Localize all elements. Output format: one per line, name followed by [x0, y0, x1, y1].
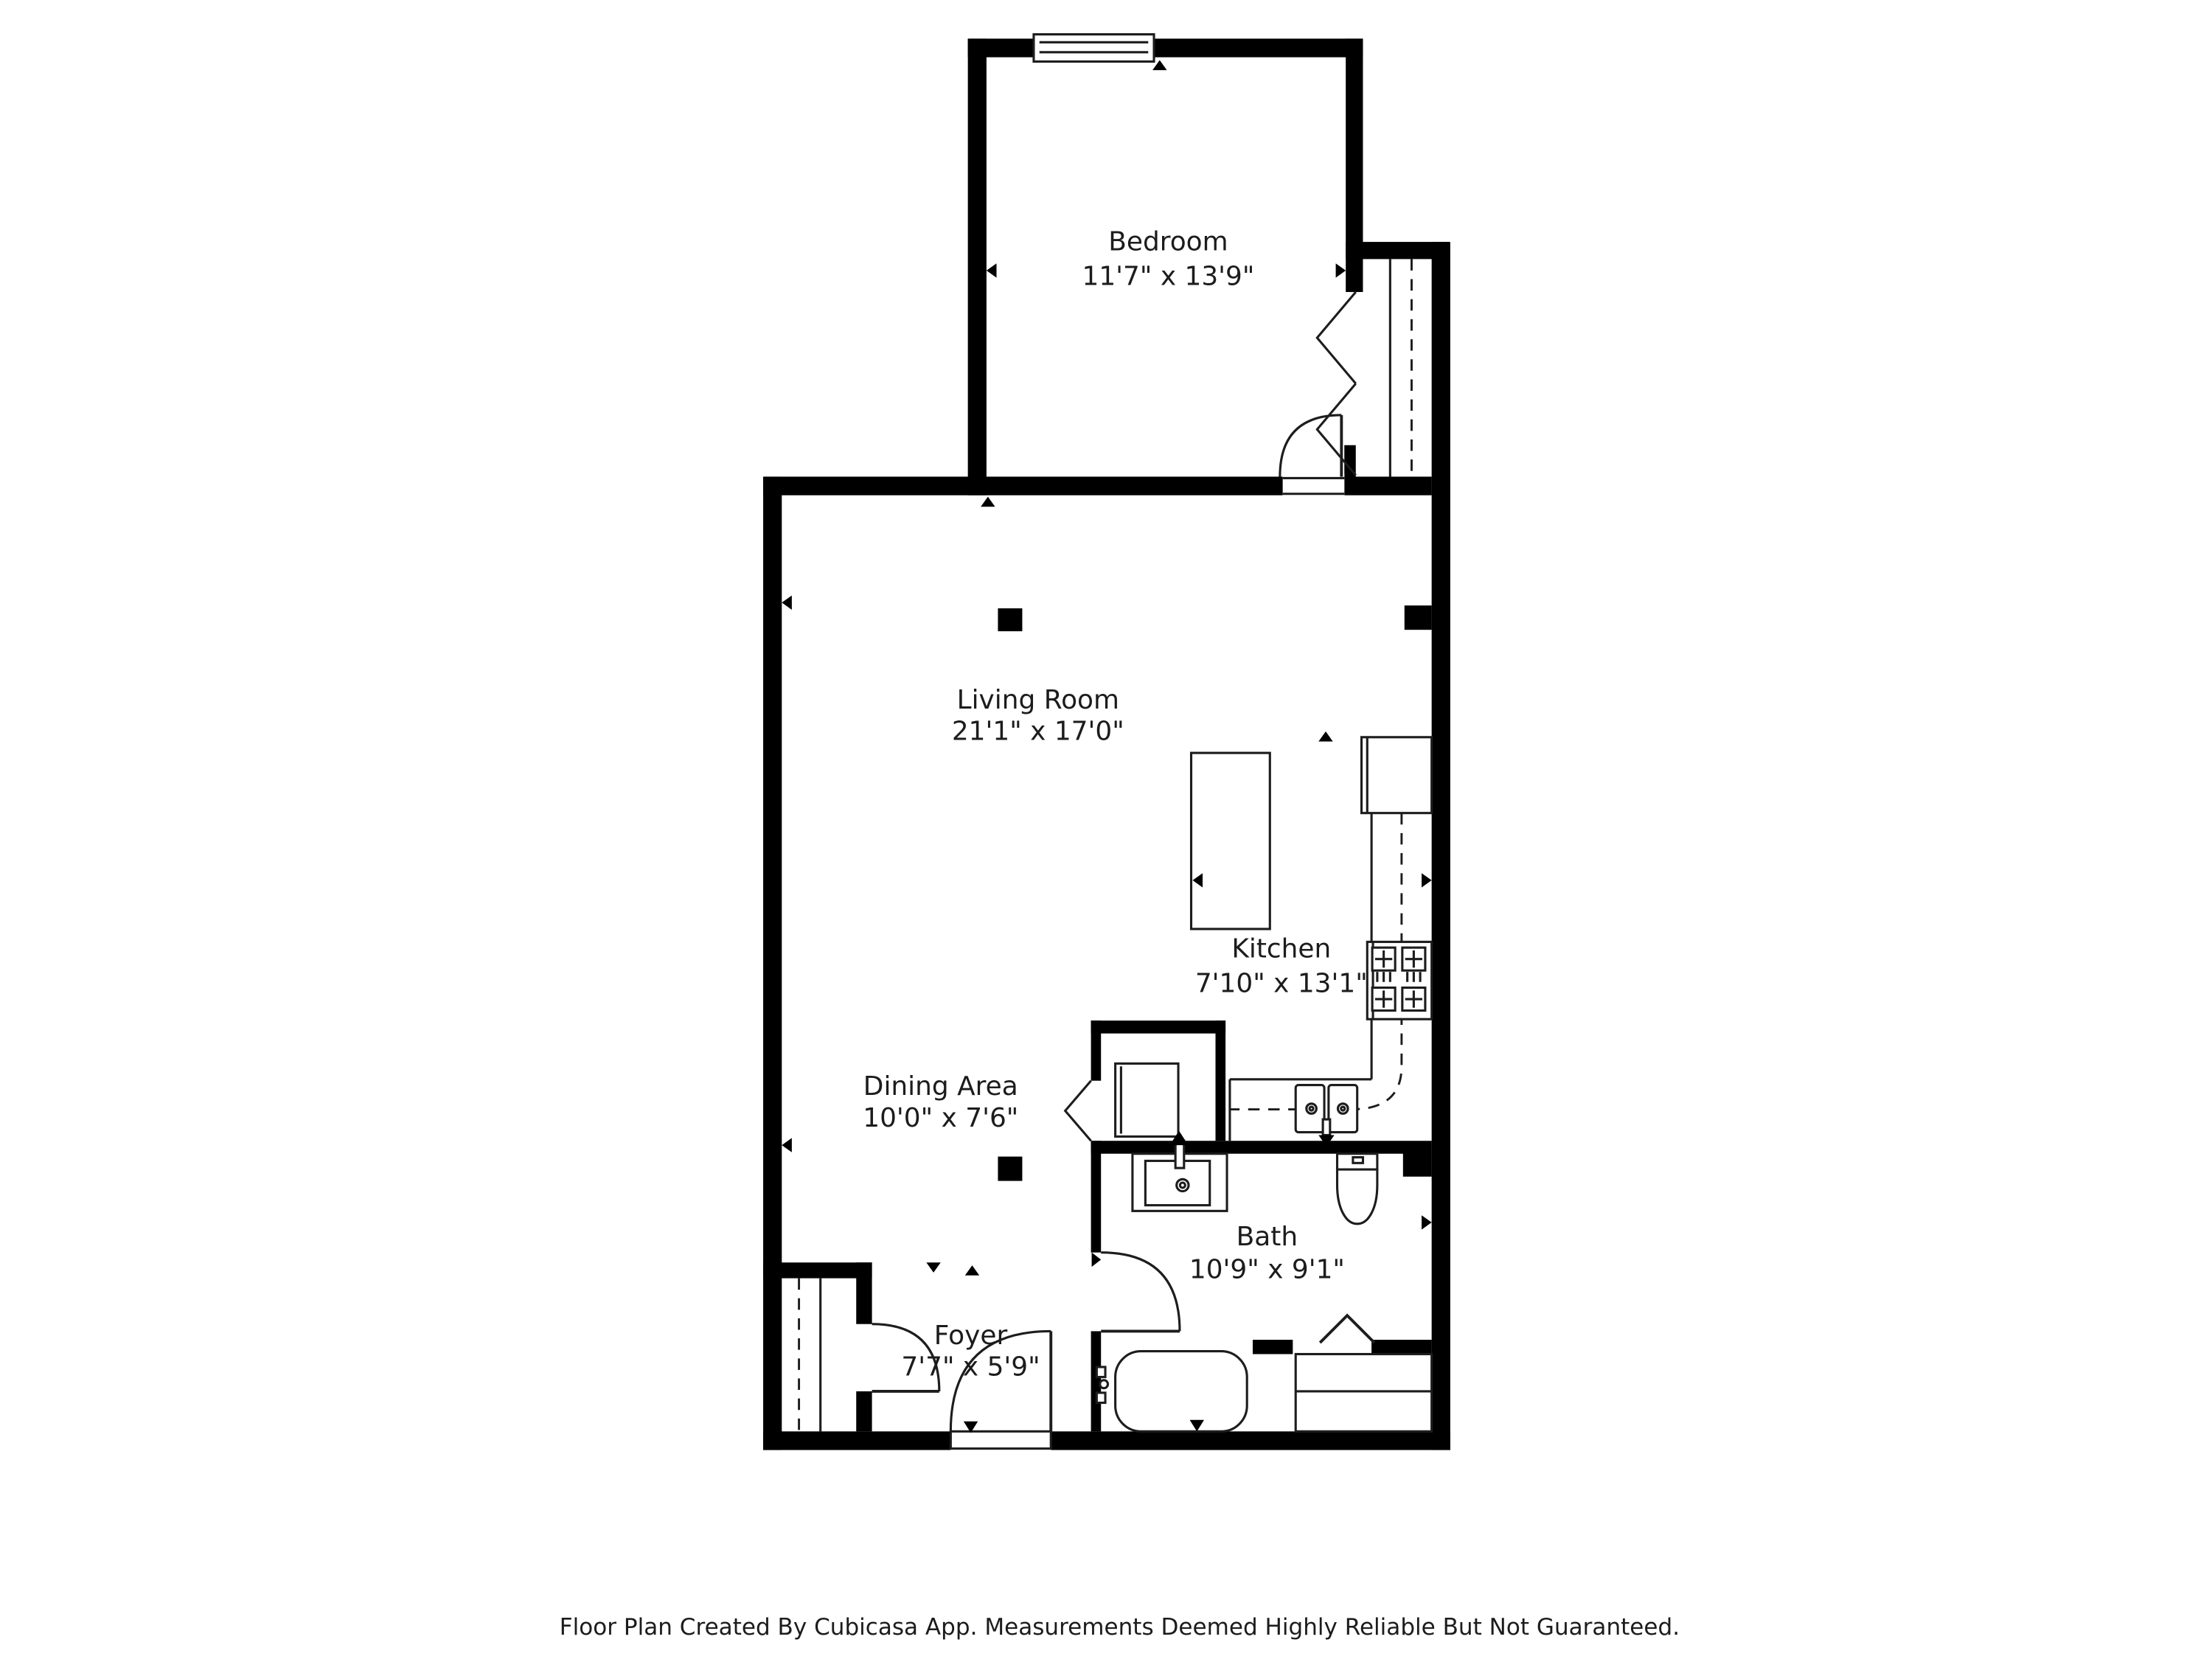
utility-closet — [1065, 1063, 1178, 1141]
kitchen-label: Kitchen — [1231, 934, 1331, 964]
right-outer-wall — [1432, 242, 1450, 1450]
bath-corner-stub-left — [1253, 1340, 1293, 1354]
refrigerator — [1362, 737, 1432, 813]
bedroom-window — [1034, 35, 1154, 62]
left-outer-wall — [763, 476, 782, 1450]
bedroom-closet-bifold-door-1 — [1317, 292, 1355, 383]
marker-bath-door-top — [1092, 1253, 1102, 1267]
kitchen-dims: 7'10" x 13'1" — [1195, 968, 1368, 998]
marker-bedroom-right — [1336, 263, 1346, 277]
living-top-wall-right — [1344, 476, 1431, 495]
living-room-dims: 21'1" x 17'0" — [952, 717, 1124, 747]
dishwasher-arrow-stem — [1323, 1119, 1330, 1135]
entry-door-threshold — [950, 1431, 1051, 1448]
bedroom-dims: 11'7" x 13'9" — [1082, 261, 1254, 291]
stove — [1367, 942, 1431, 1019]
dining-area-dims: 10'0" x 7'6" — [863, 1103, 1018, 1133]
toilet — [1338, 1154, 1377, 1224]
toilet-bowl — [1338, 1169, 1377, 1224]
living-room-column — [998, 608, 1022, 631]
living-top-wall-left — [763, 476, 1283, 495]
bath-label: Bath — [1237, 1222, 1298, 1252]
utility-appliance — [1116, 1063, 1178, 1136]
marker-kitchen-top — [1318, 731, 1332, 742]
marker-bath-right — [1422, 1215, 1432, 1229]
linen-cabinet — [1295, 1354, 1431, 1431]
bathtub-knob-bottom — [1096, 1393, 1105, 1403]
bath-dims: 10'9" x 9'1" — [1189, 1255, 1345, 1285]
toilet-flush-button — [1353, 1158, 1363, 1164]
bath-corner-stub-right — [1371, 1340, 1432, 1354]
dining-column — [998, 1157, 1022, 1181]
kitchen-bath-wall — [1091, 1141, 1432, 1153]
marker-kitchen-right — [1422, 873, 1432, 887]
foyer-closet-top-wall — [763, 1262, 872, 1278]
kitchen-sink-basin-right — [1329, 1085, 1357, 1133]
right-wall-notch — [1405, 605, 1432, 630]
foyer-closet-right-stub-top — [856, 1262, 872, 1324]
utility-closet-left-stub — [1091, 1020, 1102, 1081]
utility-closet-bifold-door — [1065, 1081, 1091, 1141]
bedroom-top-wall — [968, 38, 1363, 57]
bath-left-wall-upper — [1091, 1141, 1102, 1252]
dining-area-label: Dining Area — [863, 1071, 1018, 1102]
marker-dining-up — [965, 1265, 979, 1276]
bottom-wall-left — [763, 1431, 950, 1450]
living-room-label: Living Room — [957, 685, 1119, 715]
room-labels: Bedroom 11'7" x 13'9" Living Room 21'1" … — [863, 227, 1368, 1382]
kitchen-sink — [1295, 1085, 1357, 1147]
bathtub — [1096, 1352, 1247, 1432]
bath-door-swing — [1101, 1253, 1180, 1332]
corner-door-chevron — [1320, 1315, 1374, 1343]
bathtub-body — [1116, 1352, 1248, 1432]
marker-living-left-lower — [782, 1138, 792, 1152]
kitchen-island — [1192, 753, 1270, 929]
bath-wall-step — [1403, 1152, 1432, 1177]
foyer-closet-right-stub-bottom — [856, 1391, 872, 1431]
bedroom-label: Bedroom — [1108, 227, 1228, 257]
footer-disclaimer: Floor Plan Created By Cubicasa App. Meas… — [560, 1614, 1680, 1641]
marker-bedroom-left — [987, 263, 997, 277]
bathtub-knob-top — [1096, 1367, 1105, 1377]
bathtub-spout — [1100, 1380, 1108, 1388]
utility-closet-right-wall — [1216, 1020, 1226, 1141]
marker-dining-down — [926, 1262, 940, 1273]
bedroom-left-wall — [968, 38, 987, 495]
foyer-dims: 7'7" x 5'9" — [901, 1352, 1040, 1382]
floor-plan: Bedroom 11'7" x 13'9" Living Room 21'1" … — [0, 0, 2212, 1659]
marker-living-top — [981, 497, 995, 507]
utility-closet-top-wall — [1091, 1020, 1225, 1033]
marker-living-left-upper — [782, 596, 792, 610]
foyer-label: Foyer — [934, 1321, 1008, 1351]
bottom-wall-right — [1051, 1431, 1450, 1450]
